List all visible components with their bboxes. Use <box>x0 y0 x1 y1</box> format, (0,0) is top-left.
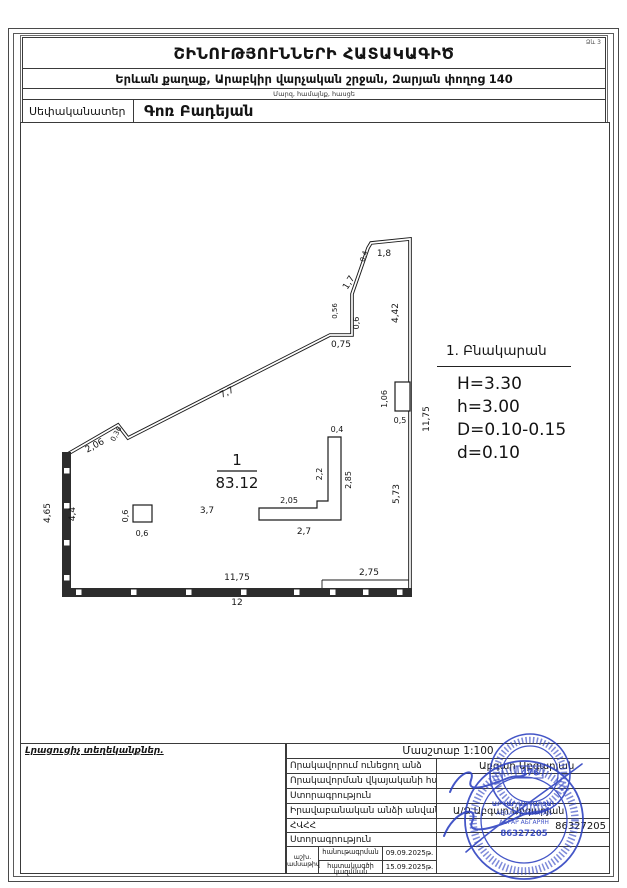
stamp-text: 476 ԱԲԳԱՐ ԱԲԳԱՐՅԱՆ ABGAR ABGARYAN АБГАР … <box>492 769 557 840</box>
stamp-number: 476 <box>521 769 539 779</box>
document-page: Ձև 3 ՇԻՆՈՒԹՅՈՒՆՆԵՐԻ ՀԱՏԱԿԱԳԻԾ Երևան քաղա… <box>0 0 627 888</box>
stamp-id-number: 86327205 <box>500 829 547 839</box>
stamp-svg: 476 ԱԲԳԱՐ ԱԲԳԱՐՅԱՆ ABGAR ABGARYAN АБГАР … <box>0 0 627 888</box>
stamps: 476 ԱԲԳԱՐ ԱԲԳԱՐՅԱՆ ABGAR ABGARYAN АБГАР … <box>444 734 583 879</box>
